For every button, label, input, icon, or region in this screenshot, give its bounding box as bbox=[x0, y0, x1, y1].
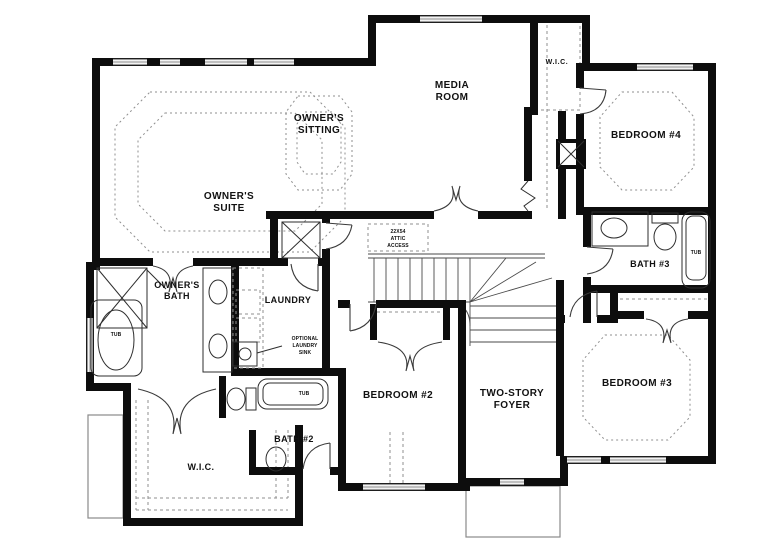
label-media-room-2: ROOM bbox=[436, 92, 469, 103]
windows bbox=[87, 16, 693, 490]
label-tub-owners: TUB bbox=[111, 332, 122, 338]
bath2-fixtures bbox=[258, 379, 328, 471]
label-bedroom-3: BEDROOM #3 bbox=[602, 378, 672, 389]
label-tub-bath2: TUB bbox=[299, 391, 310, 397]
label-owners-bath-2: BATH bbox=[164, 291, 190, 301]
note-optional-sink-1: OPTIONAL bbox=[292, 336, 319, 342]
label-owners-bath-1: OWNER'S bbox=[154, 280, 199, 290]
label-wic-lower: W.I.C. bbox=[188, 462, 215, 472]
toilet-owners bbox=[227, 388, 256, 410]
label-owners-suite-1: OWNER'S bbox=[204, 191, 254, 202]
note-optional-sink-2: LAUNDRY bbox=[293, 343, 319, 349]
note-attic-2: ATTIC bbox=[391, 236, 406, 242]
label-wic-upper: W.I.C. bbox=[546, 59, 569, 66]
owners-tub bbox=[91, 300, 142, 376]
double-vanity bbox=[203, 268, 232, 372]
label-owners-sitting-1: OWNER'S bbox=[294, 113, 344, 124]
label-bath-3: BATH #3 bbox=[630, 259, 670, 269]
cased-opening-break bbox=[521, 181, 535, 211]
linen-closet-hall bbox=[282, 222, 320, 258]
label-laundry: LAUNDRY bbox=[265, 295, 311, 305]
label-bath-2: BATH #2 bbox=[274, 434, 314, 444]
label-owners-suite-2: SUITE bbox=[213, 203, 244, 214]
floor-plan-drawing: OWNER'S SUITE OWNER'S SITTING MEDIA ROOM… bbox=[0, 0, 763, 541]
label-tub-bath3: TUB bbox=[691, 250, 702, 256]
note-attic-1: 22X54 bbox=[391, 229, 406, 235]
floor-plan: OWNER'S SUITE OWNER'S SITTING MEDIA ROOM… bbox=[0, 0, 763, 541]
fixture-labels: TUB TUB TUB bbox=[111, 250, 702, 397]
note-attic-3: ACCESS bbox=[387, 243, 409, 249]
laundry-appliances bbox=[233, 268, 282, 368]
shower bbox=[97, 268, 166, 328]
label-foyer-2: FOYER bbox=[494, 400, 531, 411]
label-owners-sitting-2: SITTING bbox=[298, 125, 340, 136]
label-media-room-1: MEDIA bbox=[435, 80, 469, 91]
note-optional-sink-3: SINK bbox=[299, 350, 312, 356]
label-bedroom-4: BEDROOM #4 bbox=[611, 130, 681, 141]
label-foyer-1: TWO-STORY bbox=[480, 388, 544, 399]
label-bedroom-2: BEDROOM #2 bbox=[363, 390, 433, 401]
